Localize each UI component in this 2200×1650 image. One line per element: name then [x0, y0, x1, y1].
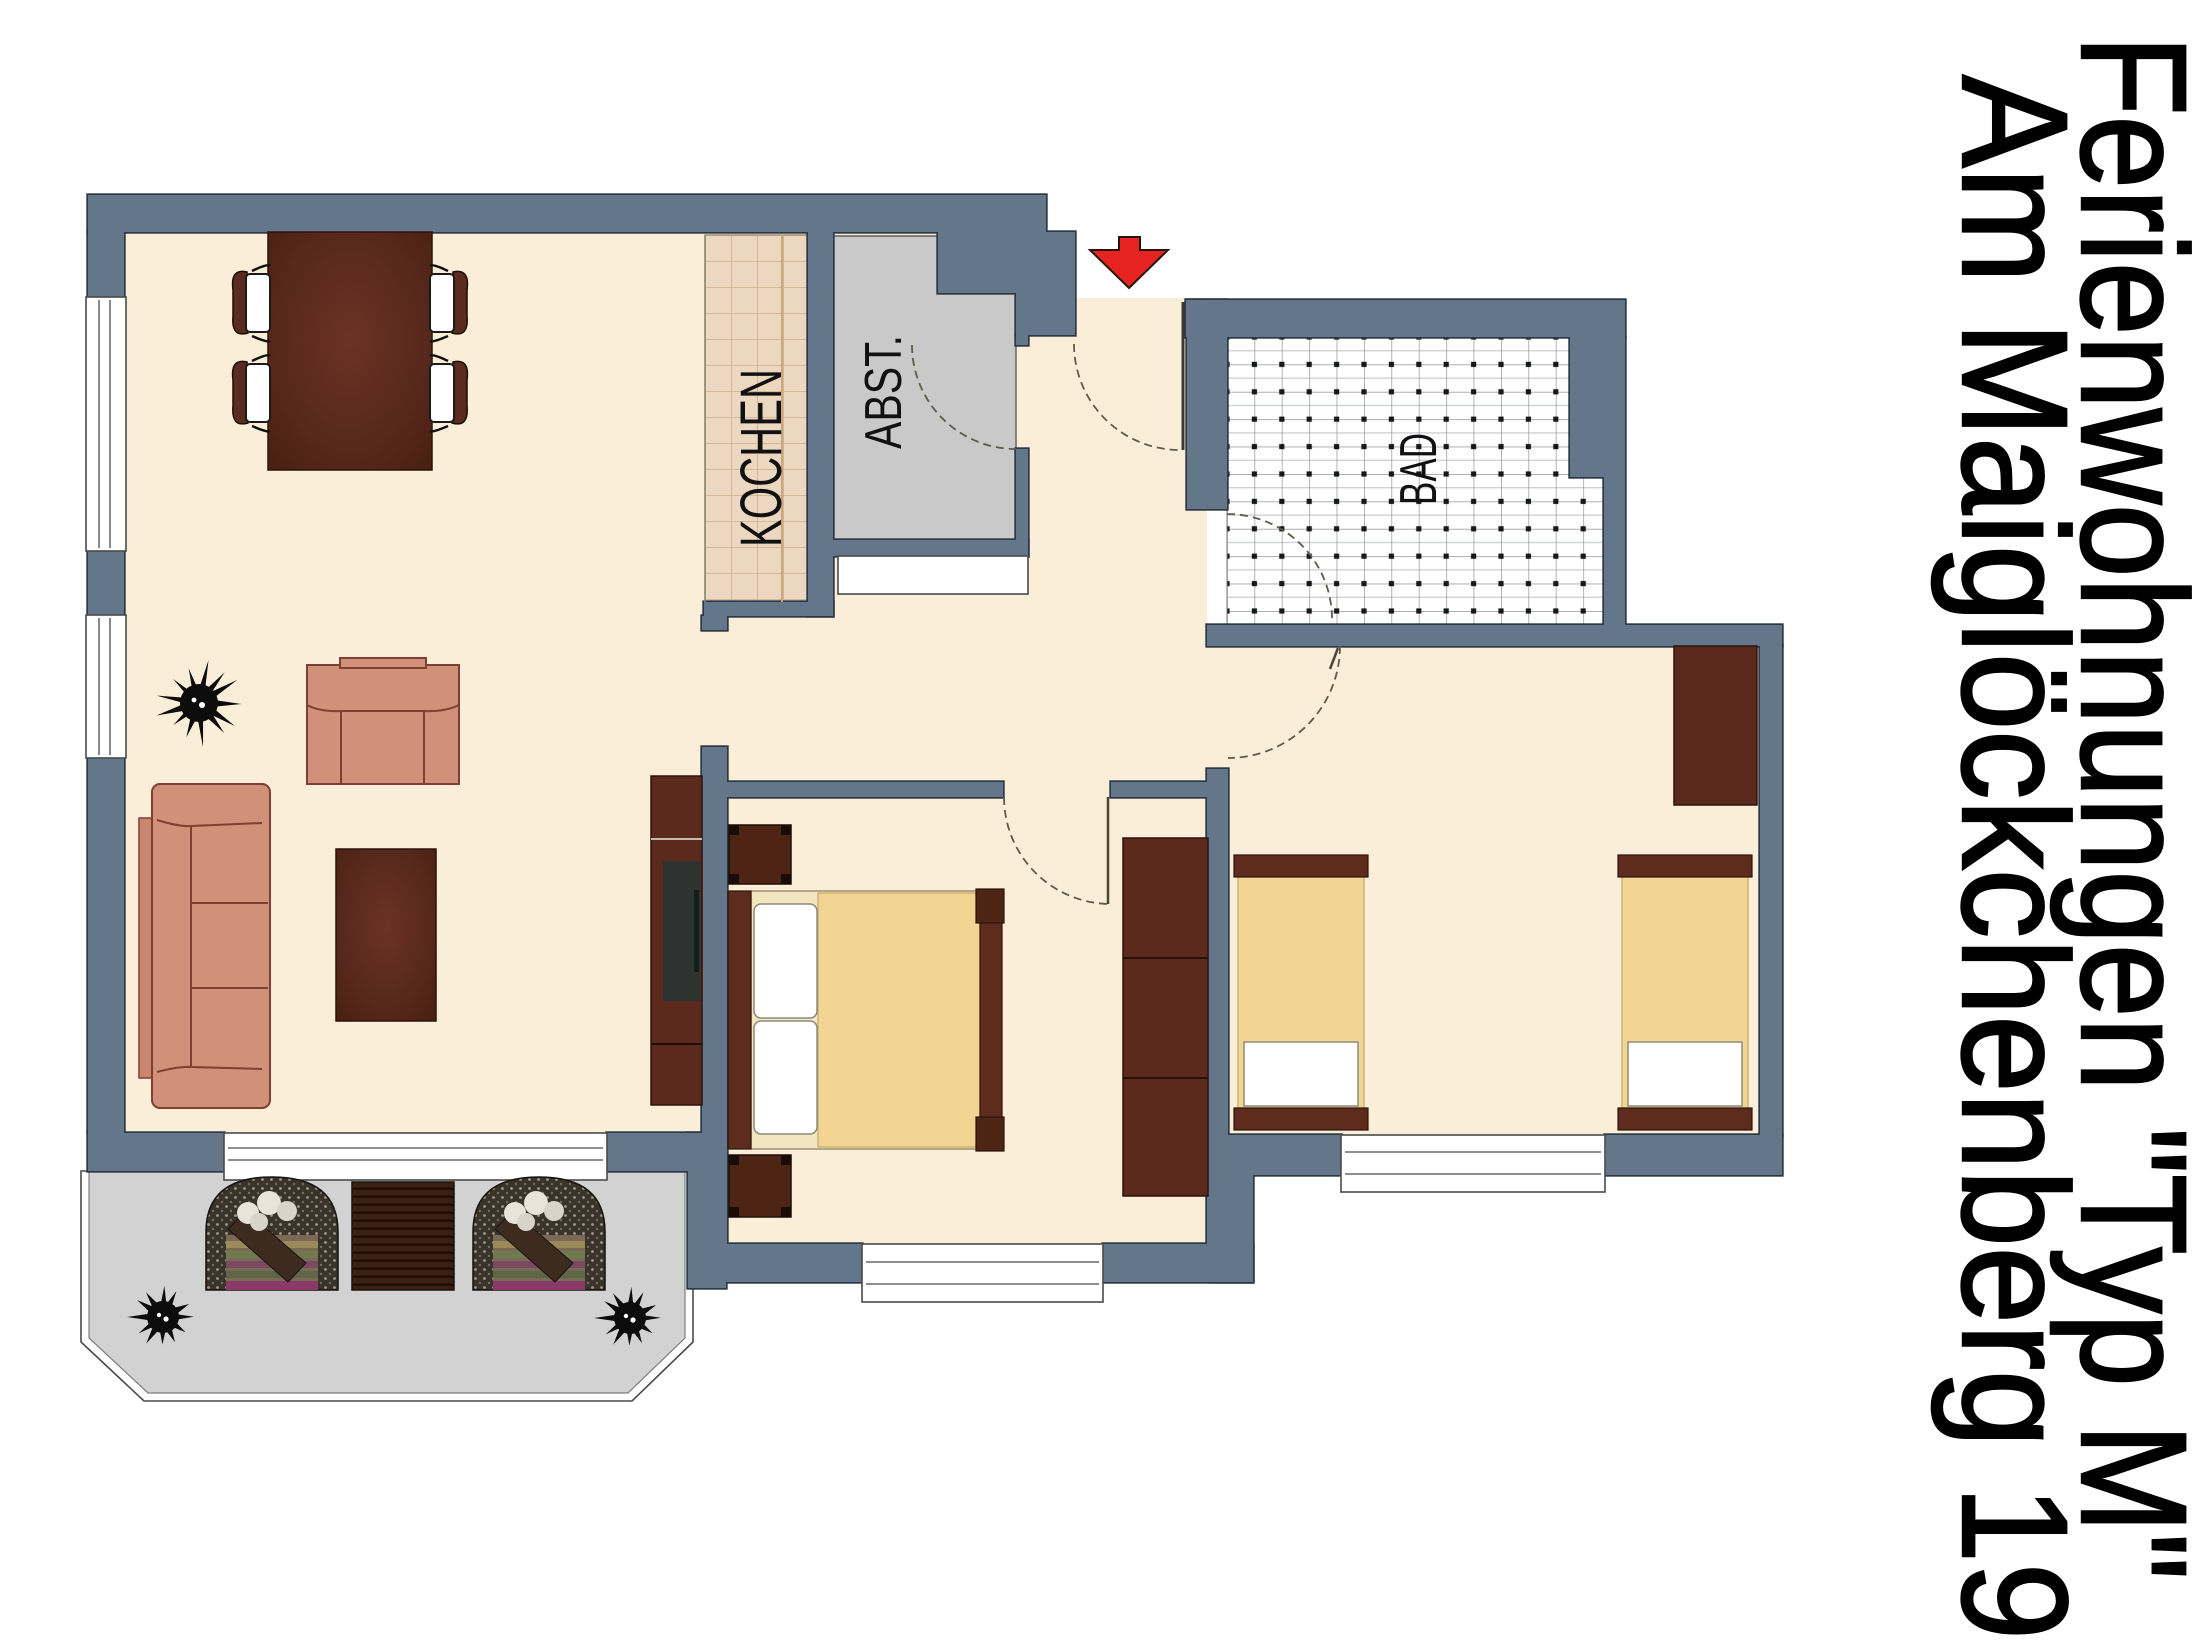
- svg-text:BAD: BAD: [1390, 433, 1448, 505]
- svg-text:KOCHEN: KOCHEN: [729, 369, 794, 547]
- svg-text:ABST.: ABST.: [855, 335, 913, 449]
- svg-text:Am Maiglöckchenberg 19: Am Maiglöckchenberg 19: [1931, 75, 2099, 1640]
